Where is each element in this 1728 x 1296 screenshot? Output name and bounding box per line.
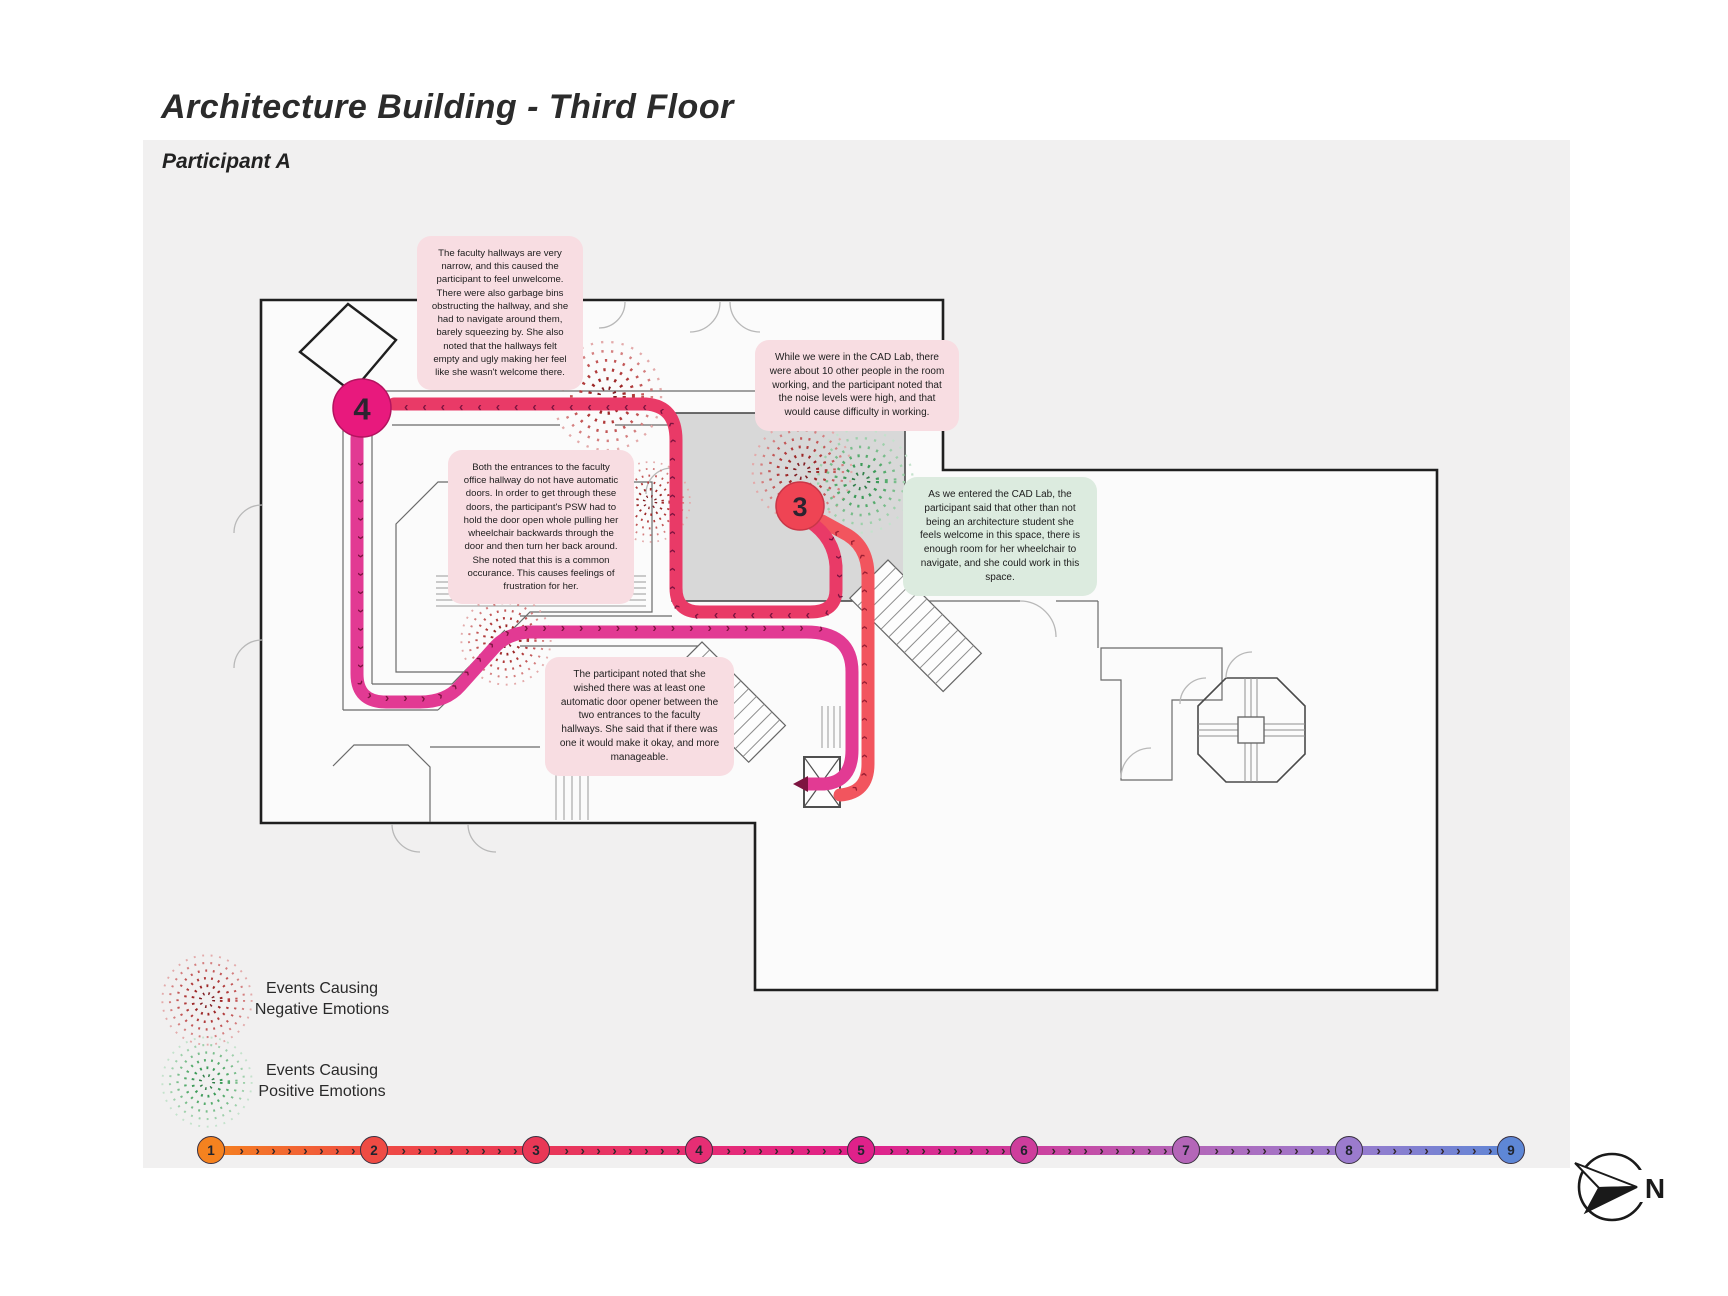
timeline-chevrons-8-9: › › › › › › › › › › <box>1369 1141 1504 1159</box>
annotation-cad-welcome-text: As we entered the CAD Lab, the participa… <box>920 489 1080 583</box>
timeline-step-1: 1 <box>197 1136 225 1164</box>
map-marker-3: 3 <box>776 482 824 530</box>
annotation-cad-noise-text: While we were in the CAD Lab, there were… <box>770 352 945 418</box>
north-arrow-icon <box>1575 1163 1637 1188</box>
annotation-cad-noise: While we were in the CAD Lab, there were… <box>755 340 959 431</box>
map-marker-3-label: 3 <box>792 492 807 522</box>
north-label: N <box>1645 1173 1665 1204</box>
annotation-door-opener-wish-text: The participant noted that she wished th… <box>560 669 719 763</box>
legend-positive-line1: Events Causing <box>217 1061 427 1082</box>
legend-positive-line2: Positive Emotions <box>217 1082 427 1103</box>
annotation-hallways-narrow-text: The faculty hallways are very narrow, an… <box>432 248 568 378</box>
timeline-chevrons-3-4: › › › › › › › › › › <box>557 1141 692 1159</box>
annotation-door-opener-wish: The participant noted that she wished th… <box>545 657 734 776</box>
legend-negative-line1: Events Causing <box>217 979 427 1000</box>
timeline-chevrons-4-5: › › › › › › › › › › <box>719 1141 854 1159</box>
timeline-step-8: 8 <box>1335 1136 1363 1164</box>
map-marker-4-label: 4 <box>353 392 371 427</box>
timeline-step-9: 9 <box>1497 1136 1525 1164</box>
timeline-step-5: 5 <box>847 1136 875 1164</box>
annotation-cad-welcome: As we entered the CAD Lab, the participa… <box>903 477 1097 596</box>
timeline-step-3: 3 <box>522 1136 550 1164</box>
timeline-chevrons-5-6: › › › › › › › › › › <box>882 1141 1017 1159</box>
timeline-chevrons-7-8: › › › › › › › › › › <box>1207 1141 1342 1159</box>
timeline-chevrons-2-3: › › › › › › › › › › <box>394 1141 529 1159</box>
timeline-step-7: 7 <box>1172 1136 1200 1164</box>
map-marker-4: 4 <box>333 379 391 437</box>
timeline-chevrons-6-7: › › › › › › › › › › <box>1044 1141 1179 1159</box>
annotation-hallways-narrow: The faculty hallways are very narrow, an… <box>417 236 583 390</box>
timeline-step-6: 6 <box>1010 1136 1038 1164</box>
journey-map-page: Architecture Building - Third Floor Part… <box>0 0 1728 1296</box>
timeline-chevrons-1-2: › › › › › › › › › › <box>232 1141 367 1159</box>
legend-negative-line2: Negative Emotions <box>217 1000 427 1021</box>
north-compass: N <box>1575 1154 1670 1220</box>
legend-positive-label: Events Causing Positive Emotions <box>217 1061 427 1103</box>
timeline-step-4: 4 <box>685 1136 713 1164</box>
annotation-entrance-doors: Both the entrances to the faculty office… <box>448 450 634 604</box>
legend-negative-label: Events Causing Negative Emotions <box>217 979 427 1021</box>
annotation-entrance-doors-text: Both the entrances to the faculty office… <box>464 462 619 592</box>
timeline-step-2: 2 <box>360 1136 388 1164</box>
